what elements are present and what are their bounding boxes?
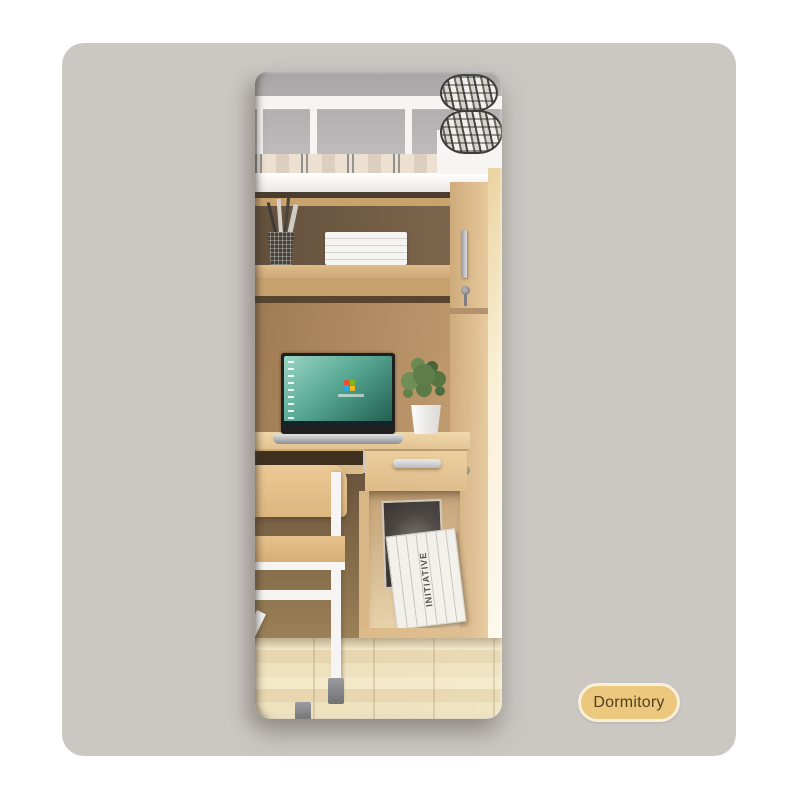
page-background: INITIATIVE bbox=[0, 0, 800, 800]
chair-rear-foot-cap bbox=[328, 678, 344, 704]
floor-contact-shadow bbox=[255, 638, 502, 650]
wardrobe-lit-side bbox=[488, 168, 502, 654]
mirror-photo: INITIATIVE bbox=[255, 72, 502, 719]
category-badge[interactable]: Dormitory bbox=[578, 683, 680, 722]
laptop-taskbar bbox=[284, 421, 392, 426]
wood-floor bbox=[255, 638, 502, 719]
pen-holder bbox=[266, 232, 296, 265]
chair-front-foot-cap bbox=[295, 702, 311, 719]
hutch-shelf-apron bbox=[255, 278, 457, 296]
chair-stretcher-bar bbox=[255, 590, 339, 600]
loft-bed-rail-post bbox=[405, 108, 412, 156]
loft-bed-rail-post bbox=[310, 108, 317, 156]
laptop bbox=[281, 353, 395, 434]
windows-logo-green bbox=[350, 380, 355, 385]
windows-logo-icon bbox=[344, 380, 355, 392]
cabinet-side-stile bbox=[359, 491, 369, 631]
keyboard-tray-slot bbox=[255, 451, 363, 465]
drawer-handle bbox=[393, 459, 441, 468]
laptop-screen bbox=[284, 356, 392, 426]
desktop-icons-column bbox=[288, 361, 294, 419]
desktop-wallpaper-caption bbox=[338, 394, 364, 397]
hutch-shelf-shadow bbox=[255, 296, 457, 303]
windows-logo-red bbox=[344, 380, 349, 385]
chair-seat bbox=[255, 536, 345, 562]
desk-drawer bbox=[365, 449, 467, 491]
windows-logo-yellow bbox=[350, 386, 355, 391]
wardrobe-key bbox=[464, 294, 467, 306]
book-stack: INITIATIVE bbox=[386, 528, 467, 630]
plant-foliage bbox=[413, 364, 435, 386]
wardrobe-door-seam bbox=[450, 308, 488, 314]
hutch-shelf bbox=[255, 265, 457, 278]
bedding-basket-lower bbox=[440, 110, 502, 154]
paper-stack bbox=[325, 232, 407, 265]
chair-seat-frame bbox=[255, 562, 345, 570]
category-badge-label: Dormitory bbox=[593, 694, 664, 712]
laptop-base bbox=[273, 434, 403, 444]
loft-bed-rail-post bbox=[257, 108, 263, 156]
book-spine-title: INITIATIVE bbox=[387, 529, 466, 629]
windows-logo-blue bbox=[344, 386, 349, 391]
chair-back-post bbox=[331, 472, 341, 700]
plant-pot bbox=[409, 405, 443, 434]
bedding-basket-upper bbox=[440, 74, 498, 112]
wardrobe-door-handle bbox=[461, 230, 467, 278]
